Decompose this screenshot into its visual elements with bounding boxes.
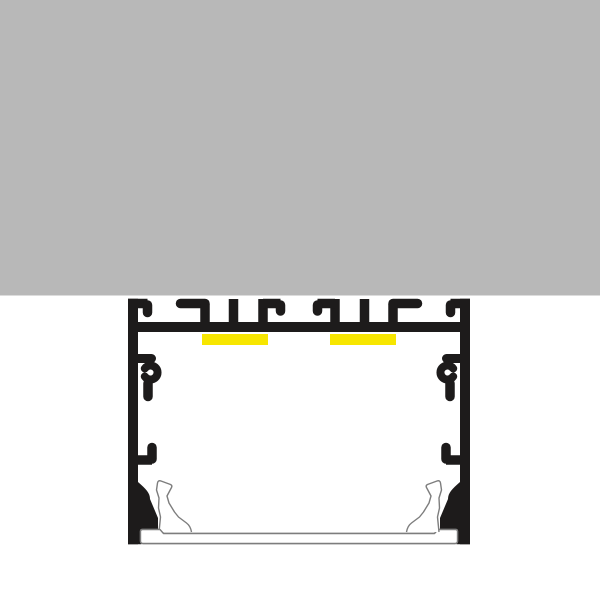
- led-strip: [202, 334, 268, 345]
- diagram-canvas: [0, 0, 600, 600]
- led-profile-cross-section-svg: [0, 0, 600, 600]
- ceiling-mounting-surface: [0, 0, 600, 296]
